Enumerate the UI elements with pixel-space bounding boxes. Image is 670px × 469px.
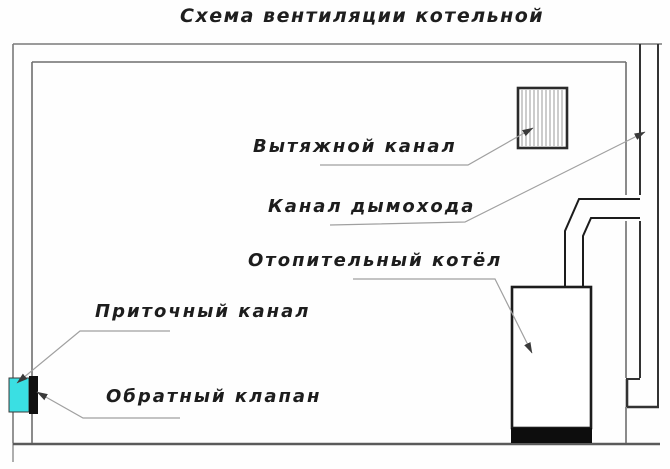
check-valve-flap <box>29 376 38 414</box>
check-valve <box>9 376 38 414</box>
chimney-shaft <box>626 44 659 407</box>
flue-pipe <box>565 199 640 287</box>
supply-duct-opening <box>9 378 29 412</box>
exhaust-vent-grille <box>518 88 567 148</box>
leader-boiler <box>353 279 532 353</box>
label-exhaust-duct: Вытяжной канал <box>253 136 457 157</box>
boiler-base <box>511 428 592 443</box>
label-boiler: Отопительный котёл <box>248 250 502 271</box>
diagram-canvas: Схема вентиляции котельной Вытяжной кана… <box>0 0 670 469</box>
leader-supply-duct <box>17 331 170 383</box>
diagram-title: Схема вентиляции котельной <box>180 5 544 27</box>
label-chimney-duct: Канал дымохода <box>268 196 475 217</box>
ventilation-diagram <box>0 0 670 469</box>
label-supply-duct: Приточный канал <box>95 301 310 322</box>
label-check-valve: Обратный клапан <box>106 386 322 407</box>
heating-boiler <box>511 287 592 443</box>
